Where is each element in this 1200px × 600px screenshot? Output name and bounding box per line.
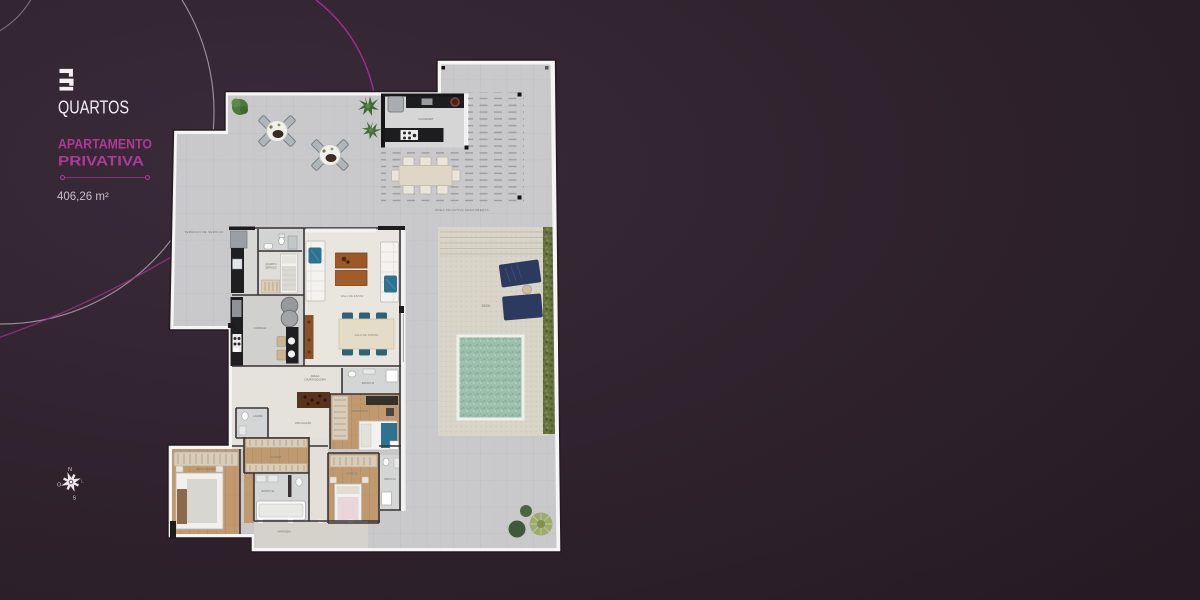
svg-text:APARTAMENTO: APARTAMENTO bbox=[58, 137, 152, 152]
svg-text:BANHO 01: BANHO 01 bbox=[384, 478, 396, 481]
svg-text:CLOSET: CLOSET bbox=[271, 455, 282, 459]
svg-text:S: S bbox=[73, 496, 77, 502]
svg-text:ESCRITÓRIO: ESCRITÓRIO bbox=[352, 410, 368, 413]
svg-text:SUÍTE MASTER: SUÍTE MASTER bbox=[196, 467, 215, 471]
svg-text:BANHO 03: BANHO 03 bbox=[362, 382, 375, 385]
svg-text:N: N bbox=[68, 467, 72, 473]
svg-text:O: O bbox=[57, 483, 62, 489]
svg-text:SERVIÇO: SERVIÇO bbox=[265, 266, 277, 270]
svg-text:SALA DE JANTAR: SALA DE JANTAR bbox=[355, 333, 379, 337]
svg-text:L: L bbox=[81, 479, 84, 485]
svg-text:SUÍTE 01: SUÍTE 01 bbox=[346, 472, 358, 476]
svg-text:CHURRASQUEIRA: CHURRASQUEIRA bbox=[304, 379, 326, 382]
svg-text:QUARTOS: QUARTOS bbox=[58, 97, 129, 118]
svg-text:PRIVATIVA: PRIVATIVA bbox=[58, 154, 144, 169]
svg-text:TERRAÇO DE SERVIÇO: TERRAÇO DE SERVIÇO bbox=[184, 230, 224, 234]
svg-text:COZINHA: COZINHA bbox=[254, 326, 267, 330]
svg-text:CIRCULAÇÃO: CIRCULAÇÃO bbox=[295, 422, 311, 425]
svg-text:SALA DE ESTAR: SALA DE ESTAR bbox=[340, 294, 364, 298]
svg-text:QUARTO: QUARTO bbox=[265, 262, 276, 266]
svg-text:VARANDA: VARANDA bbox=[277, 530, 290, 534]
svg-text:LAVABO: LAVABO bbox=[253, 415, 263, 418]
svg-text:GOURMET: GOURMET bbox=[418, 117, 434, 121]
svg-text:406,26 m²: 406,26 m² bbox=[57, 191, 109, 203]
svg-text:DECK: DECK bbox=[482, 304, 492, 308]
svg-text:BANHO S1: BANHO S1 bbox=[262, 490, 275, 493]
svg-text:ÁREA PRIVATIVA DESCOBERTA: ÁREA PRIVATIVA DESCOBERTA bbox=[435, 208, 489, 212]
